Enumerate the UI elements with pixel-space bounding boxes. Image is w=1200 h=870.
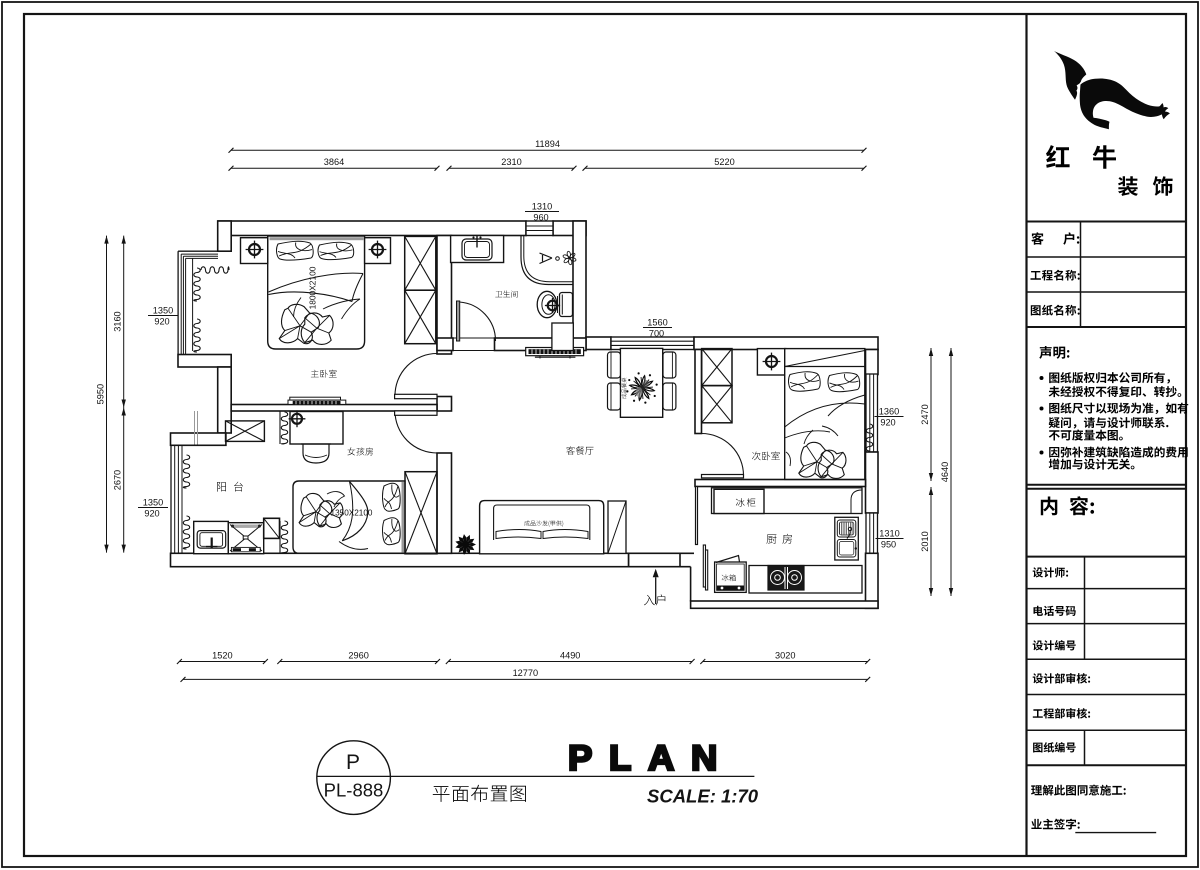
svg-text:1310: 1310 — [879, 528, 899, 538]
svg-text:700: 700 — [649, 329, 664, 339]
svg-text:1520: 1520 — [212, 650, 232, 660]
svg-text:4640: 4640 — [940, 462, 950, 482]
svg-text:PL-888: PL-888 — [324, 780, 384, 801]
svg-text:5220: 5220 — [714, 157, 734, 167]
svg-text:11894: 11894 — [535, 139, 560, 149]
svg-text:SCALE: 1:70: SCALE: 1:70 — [647, 786, 759, 807]
svg-text:3020: 3020 — [775, 650, 795, 660]
svg-text:1350: 1350 — [153, 305, 173, 315]
svg-text:960: 960 — [533, 213, 548, 223]
svg-text:1360: 1360 — [879, 406, 899, 416]
svg-text:PLAN: PLAN — [568, 739, 734, 778]
svg-text:2960: 2960 — [348, 650, 368, 660]
svg-text:2010: 2010 — [920, 531, 930, 551]
svg-text:920: 920 — [880, 418, 895, 428]
svg-text:920: 920 — [154, 317, 169, 327]
svg-text:5950: 5950 — [95, 384, 105, 404]
svg-text:12770: 12770 — [513, 668, 539, 678]
svg-text:1350: 1350 — [143, 497, 163, 507]
svg-text:1310: 1310 — [532, 201, 552, 211]
svg-text:3864: 3864 — [324, 157, 344, 167]
svg-text:3160: 3160 — [113, 311, 123, 331]
svg-text:1560: 1560 — [647, 317, 667, 327]
svg-text:950: 950 — [881, 540, 896, 550]
svg-text:P: P — [346, 751, 360, 774]
svg-text:2470: 2470 — [920, 404, 930, 424]
svg-text:2310: 2310 — [501, 157, 521, 167]
svg-text:920: 920 — [144, 509, 159, 519]
svg-text:4490: 4490 — [560, 650, 580, 660]
svg-text:2670: 2670 — [113, 470, 123, 490]
svg-text:1800X2100: 1800X2100 — [308, 266, 318, 309]
svg-text:1350X2100: 1350X2100 — [331, 509, 373, 518]
